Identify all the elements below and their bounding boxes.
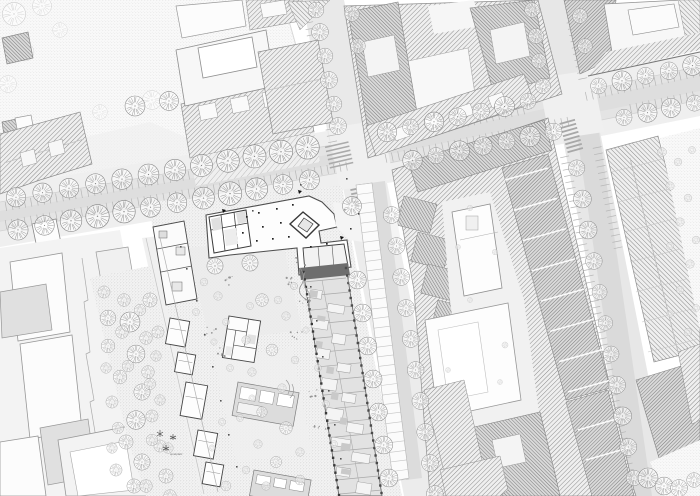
svg-text:spielplatz: spielplatz bbox=[170, 452, 183, 456]
